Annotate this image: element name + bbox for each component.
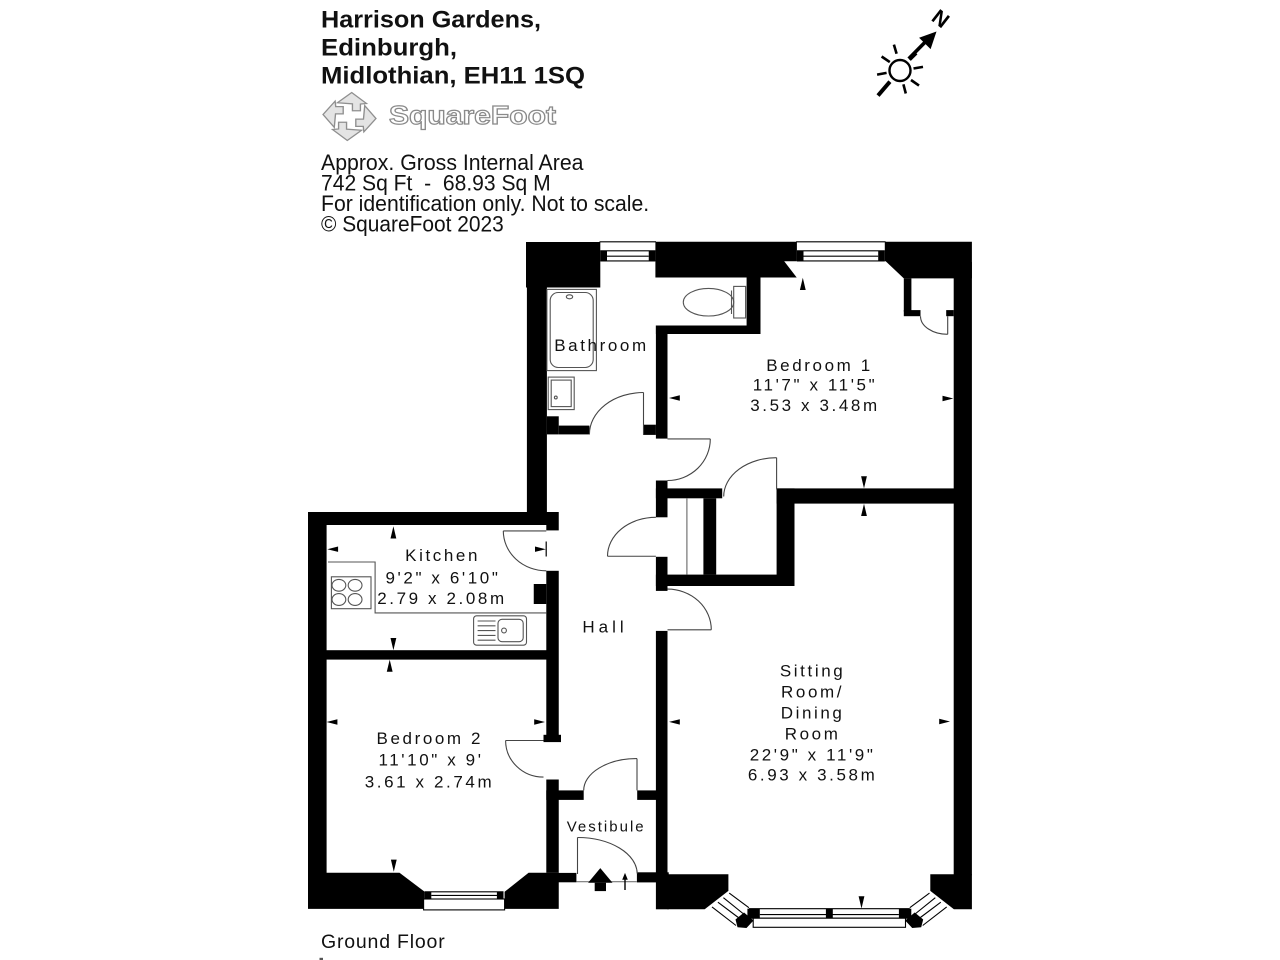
svg-text:Bedroom 2: Bedroom 2 <box>377 729 484 748</box>
svg-text:Ground Floor: Ground Floor <box>321 931 446 953</box>
svg-text:Kitchen: Kitchen <box>405 546 480 565</box>
svg-text:3.61 x 2.74m: 3.61 x 2.74m <box>365 773 494 792</box>
svg-text:Hall: Hall <box>582 618 627 637</box>
svg-text:9'2" x 6'10": 9'2" x 6'10" <box>386 569 501 588</box>
svg-text:Bathroom: Bathroom <box>554 336 649 355</box>
svg-text:3.53 x 3.48m: 3.53 x 3.48m <box>750 396 879 415</box>
svg-text:SquareFoot: SquareFoot <box>389 100 556 130</box>
svg-text:Harrison Gardens,: Harrison Gardens, <box>321 7 541 34</box>
svg-text:11'10" x 9': 11'10" x 9' <box>378 751 483 770</box>
svg-text:11'7" x 11'5": 11'7" x 11'5" <box>753 376 878 395</box>
svg-text:Midlothian, EH11 1SQ: Midlothian, EH11 1SQ <box>321 63 585 90</box>
svg-text:© SquareFoot 2023: © SquareFoot 2023 <box>321 212 504 237</box>
svg-text:Room: Room <box>785 725 841 744</box>
svg-text:2.79 x 2.08m: 2.79 x 2.08m <box>377 589 506 608</box>
svg-text:Edinburgh,: Edinburgh, <box>321 35 457 62</box>
svg-text:Vestibule: Vestibule <box>567 819 646 836</box>
svg-text:Bedroom 1: Bedroom 1 <box>766 356 873 375</box>
svg-text:Room/: Room/ <box>781 683 844 702</box>
svg-text:Dining: Dining <box>781 704 845 723</box>
svg-text:6.93 x 3.58m: 6.93 x 3.58m <box>748 766 877 785</box>
svg-text:22'9" x 11'9": 22'9" x 11'9" <box>750 746 876 765</box>
svg-text:Sitting: Sitting <box>780 662 845 681</box>
